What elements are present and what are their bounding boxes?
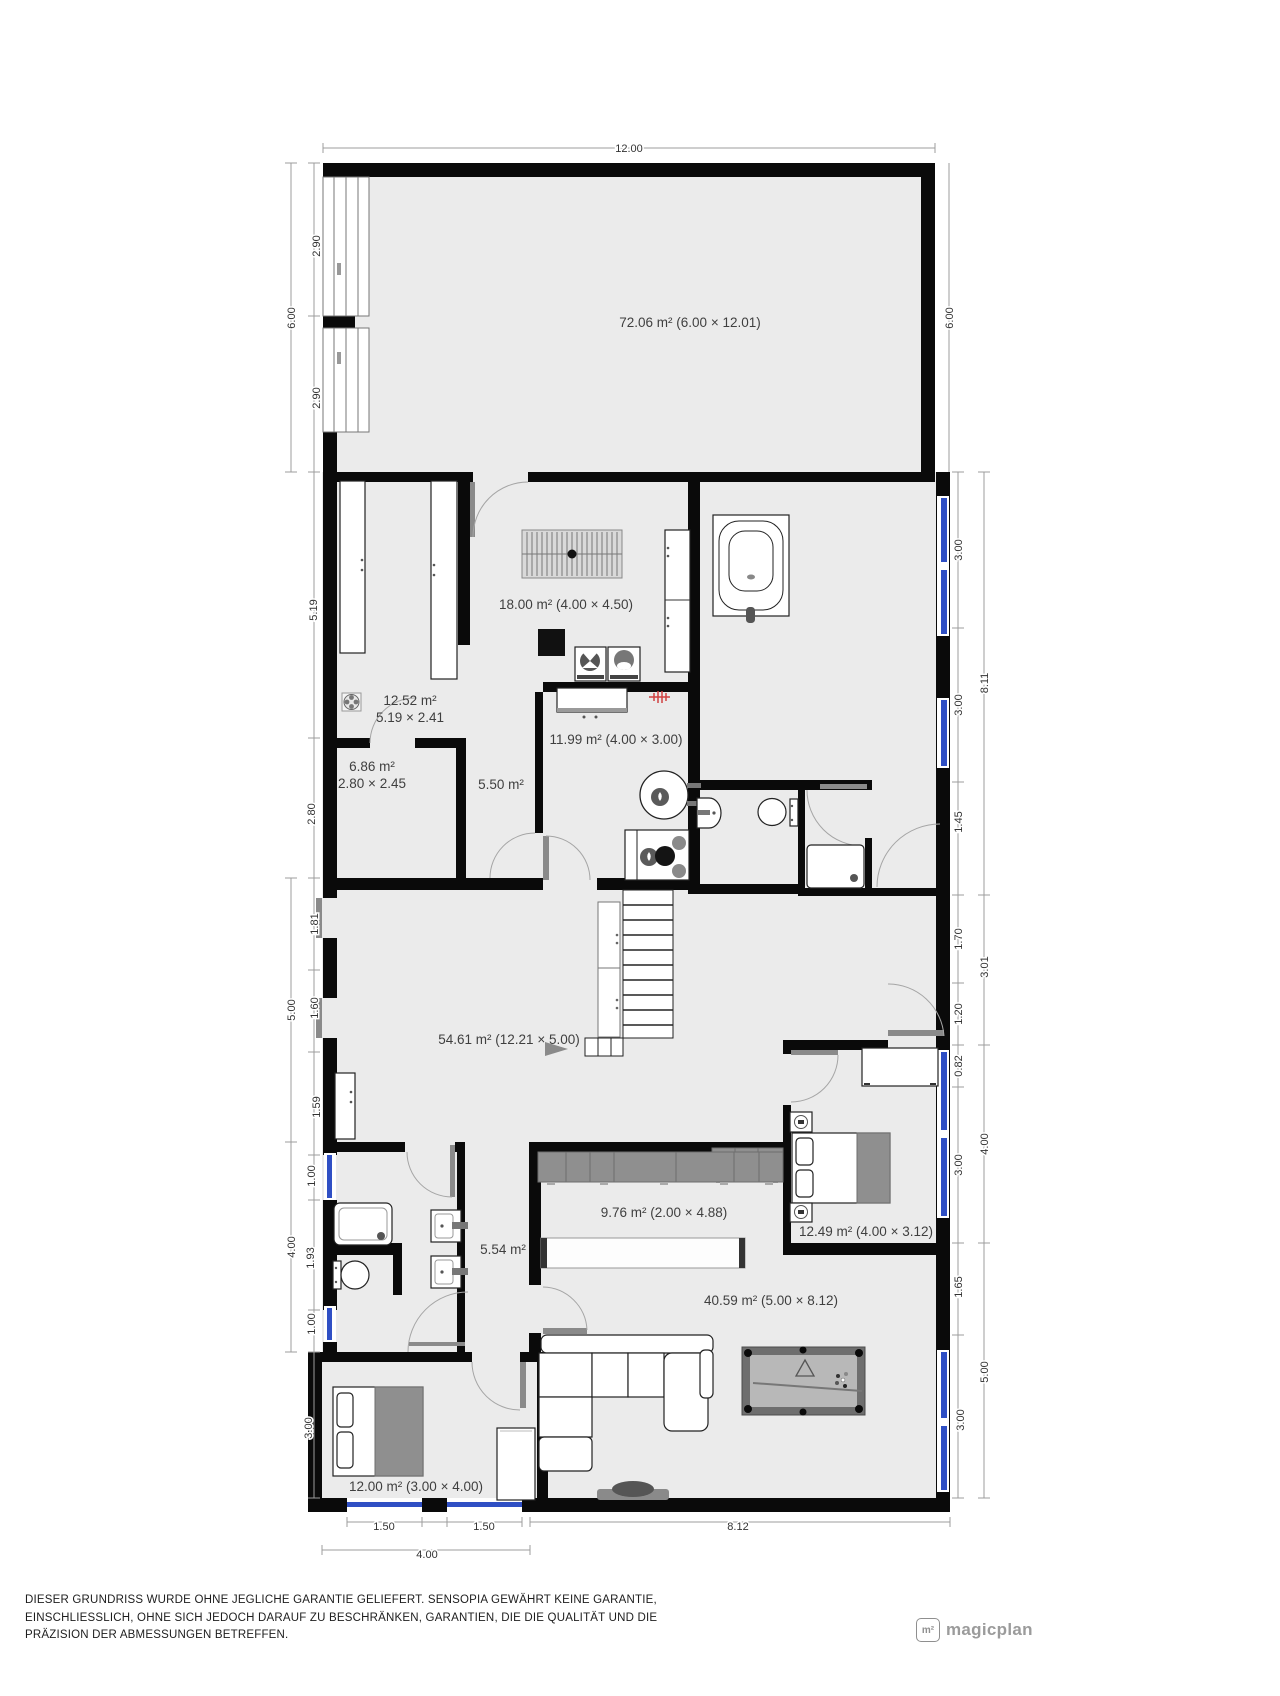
laundry-cabinet — [665, 530, 690, 672]
logo-wordmark: magicplan — [946, 1620, 1033, 1640]
room-label-kitchen: 11.99 m² (4.00 × 3.00) — [550, 732, 683, 747]
dim-left-11: 1.93 — [305, 1247, 317, 1268]
dim-left-9: 1.00 — [306, 1165, 318, 1186]
bedroom-right-desk — [862, 1048, 938, 1086]
dim-bottom-2: 8.12 — [727, 1521, 748, 1533]
room-label-laundry: 18.00 m² (4.00 × 4.50) — [499, 597, 633, 612]
room-label-corridor: 9.76 m² (2.00 × 4.88) — [601, 1205, 727, 1220]
vent-unit — [522, 530, 622, 578]
dim-right-10: 3.00 — [953, 1154, 965, 1175]
shower-left — [334, 1203, 392, 1245]
room-label-closet: 12.52 m² — [383, 693, 437, 708]
dim-right-4: 1.45 — [953, 811, 965, 832]
room-label-bedroom-bottom: 12.00 m² (3.00 × 4.00) — [349, 1479, 483, 1494]
dim-left-13: 3.00 — [303, 1417, 315, 1438]
shower-mid — [807, 845, 864, 888]
dim-right-7: 1.20 — [953, 1003, 965, 1024]
dim-top: 12.00 — [615, 143, 643, 155]
dim-left-6: 5.00 — [286, 999, 298, 1020]
dim-right-8: 0.82 — [953, 1055, 965, 1076]
corridor-wardrobe — [538, 1152, 783, 1185]
dim-left-2: 2.90 — [311, 387, 323, 408]
floor-plan-canvas: 12.00 2.90 6.00 2.90 5.19 2.80 1.81 5.00… — [0, 0, 1280, 1696]
dim-left-7: 1.60 — [309, 997, 321, 1018]
room-label-closet-sub: 5.19 × 2.41 — [376, 710, 444, 725]
dim-left-0: 2.90 — [311, 235, 323, 256]
closet-right — [431, 481, 457, 679]
wc-sink — [697, 798, 721, 828]
bed-right — [792, 1133, 890, 1203]
bed-bottom — [333, 1387, 423, 1476]
toilet-left — [333, 1261, 369, 1289]
washer — [575, 647, 606, 681]
room-label-hall-top: 5.50 m² — [478, 777, 524, 792]
window-top-left-2 — [323, 328, 369, 432]
wc-toilet — [758, 799, 798, 827]
dim-bottom-3: 4.00 — [416, 1549, 437, 1561]
ac-unit — [342, 693, 361, 711]
living-closet — [335, 1073, 355, 1139]
dim-right-9: 4.00 — [979, 1133, 991, 1154]
closet-left — [340, 481, 365, 653]
disclaimer-line-2: EINSCHLIESSLICH, OHNE SICH JEDOCH DARAUF… — [25, 1610, 665, 1628]
floor-plan-page: 12.00 2.90 6.00 2.90 5.19 2.80 1.81 5.00… — [0, 0, 1280, 1696]
bottom-wardrobe — [497, 1428, 535, 1500]
dim-right-6: 3.01 — [979, 956, 991, 977]
magicplan-logo: m² magicplan — [916, 1618, 1033, 1642]
fireplace-block — [538, 629, 565, 656]
pool-table — [742, 1347, 865, 1416]
m2-logo-icon: m² — [916, 1618, 940, 1642]
dim-bottom-1: 1.50 — [473, 1521, 494, 1533]
dim-right-0: 6.00 — [944, 307, 956, 328]
room-label-hall-bottom: 5.54 m² — [480, 1242, 526, 1257]
dim-left-3: 5.19 — [308, 599, 320, 620]
disclaimer: DIESER GRUNDRISS WURDE OHNE JEGLICHE GAR… — [25, 1592, 665, 1645]
nightstand-1 — [790, 1112, 812, 1132]
window-top-left-1 — [323, 177, 369, 316]
dim-left-1: 6.00 — [286, 307, 298, 328]
dim-right-2: 8.11 — [979, 673, 991, 694]
dim-left-5: 1.81 — [309, 913, 321, 934]
room-label-family: 40.59 m² (5.00 × 8.12) — [704, 1293, 838, 1308]
room-label-top: 72.06 m² (6.00 × 12.01) — [619, 315, 760, 330]
room-label-living: 54.61 m² (12.21 × 5.00) — [438, 1032, 579, 1047]
nightstand-2 — [790, 1203, 812, 1222]
dim-left-12: 1.00 — [306, 1313, 318, 1334]
disclaimer-line-1: DIESER GRUNDRISS WURDE OHNE JEGLICHE GAR… — [25, 1592, 665, 1610]
room-label-storage-sub: 2.80 × 2.45 — [338, 776, 406, 791]
dim-right-3: 3.00 — [953, 694, 965, 715]
stove — [625, 830, 689, 880]
dryer — [608, 647, 640, 681]
dim-bottom-0: 1.50 — [373, 1521, 394, 1533]
disclaimer-line-3: PRÄZISION DER ABMESSUNGEN BETREFFEN. — [25, 1627, 665, 1645]
dim-right-1: 3.00 — [953, 539, 965, 560]
dim-right-13: 3.00 — [955, 1409, 967, 1430]
room-label-bedroom-right: 12.49 m² (4.00 × 3.12) — [799, 1224, 933, 1239]
room-label-storage: 6.86 m² — [349, 759, 395, 774]
dim-right-12: 5.00 — [979, 1361, 991, 1382]
dim-left-4: 2.80 — [306, 803, 318, 824]
bathtub — [713, 515, 789, 623]
dim-right-5: 1.70 — [953, 928, 965, 949]
dim-left-8: 1.59 — [311, 1096, 323, 1117]
console-table — [541, 1238, 745, 1268]
dim-right-11: 1.65 — [953, 1276, 965, 1297]
dim-left-10: 4.00 — [286, 1236, 298, 1257]
